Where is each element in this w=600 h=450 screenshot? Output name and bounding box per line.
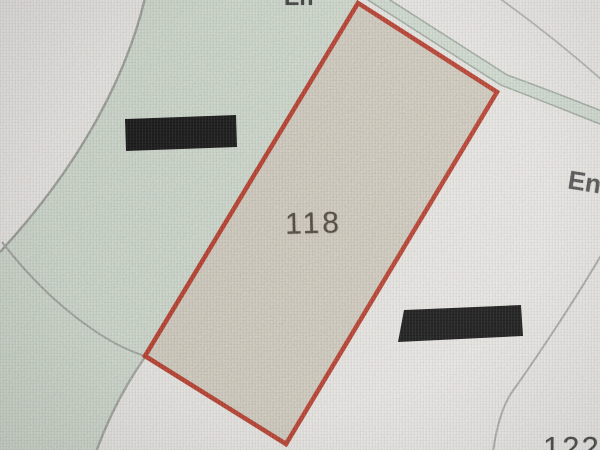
redaction-bar-2 (398, 305, 523, 342)
street-label-right: En (566, 165, 600, 201)
street-label-top-clipped: En (284, 0, 313, 11)
parcel-number-label: 118 (285, 206, 343, 241)
parcel-number-label-bottom-clipped: 122 (543, 430, 600, 450)
redaction-bar-1 (125, 115, 237, 151)
map-viewport[interactable]: 118 En En 122 (0, 0, 600, 450)
